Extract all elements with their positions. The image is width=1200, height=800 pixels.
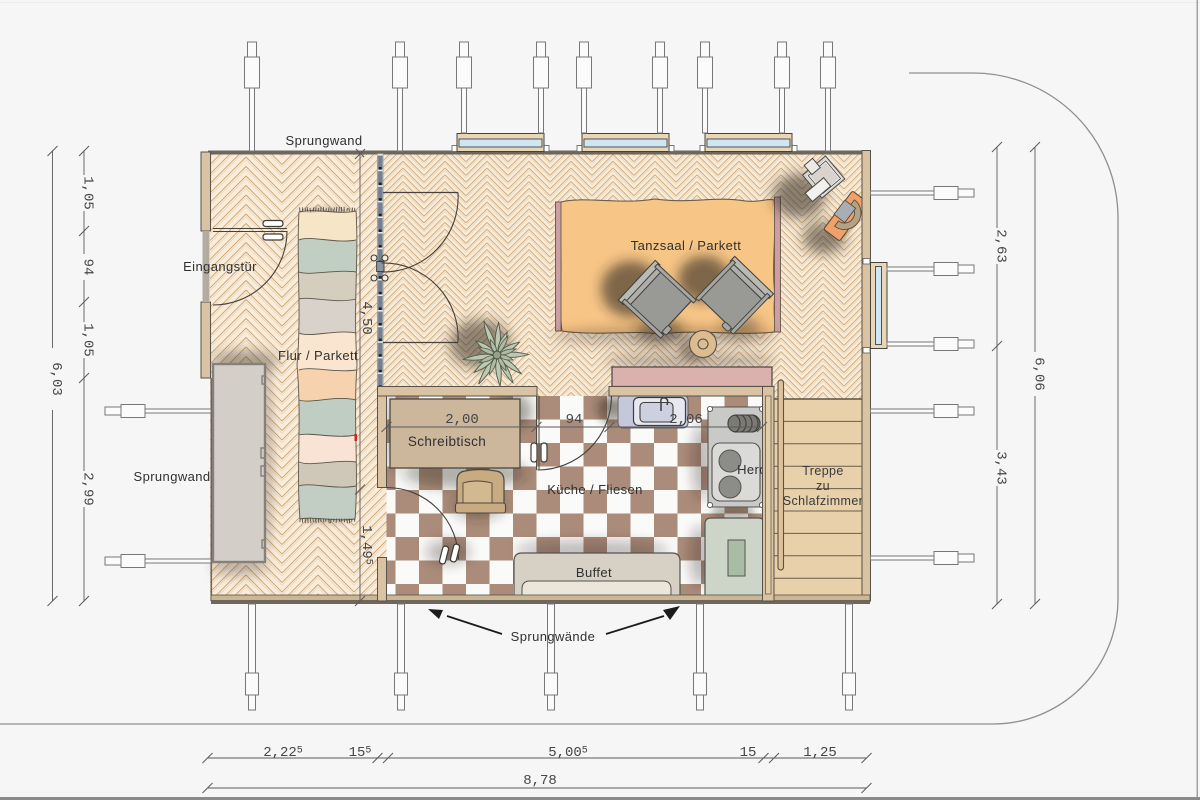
svg-text:1,05: 1,05 [80,323,96,357]
svg-text:94: 94 [80,259,96,276]
svg-text:Treppe: Treppe [802,464,844,478]
svg-text:Buffet: Buffet [576,565,612,580]
svg-text:6,06: 6,06 [1031,357,1047,391]
svg-text:Schreibtisch: Schreibtisch [408,434,486,449]
svg-text:6,03: 6,03 [48,362,64,396]
svg-text:1,25: 1,25 [803,745,837,761]
svg-text:Küche / Fliesen: Küche / Fliesen [547,482,643,497]
svg-text:Sprungwand: Sprungwand [286,133,363,148]
svg-text:Sprungwände: Sprungwände [511,629,596,644]
svg-text:8,78: 8,78 [523,773,557,789]
svg-text:zu: zu [816,479,830,493]
svg-text:2,00: 2,00 [445,412,479,428]
svg-text:Tanzsaal / Parkett: Tanzsaal / Parkett [631,238,742,253]
svg-text:Sprungwand: Sprungwand [134,469,211,484]
svg-text:2,06: 2,06 [669,412,703,428]
svg-text:2,63: 2,63 [993,229,1009,263]
svg-text:Schlafzimmer: Schlafzimmer [783,494,864,508]
svg-text:15: 15 [740,745,757,761]
svg-text:3,43: 3,43 [993,451,1009,485]
svg-text:Flur / Parkett: Flur / Parkett [278,348,358,363]
svg-text:94: 94 [566,412,583,428]
svg-text:4,50: 4,50 [358,301,374,335]
svg-text:1,05: 1,05 [80,176,96,210]
svg-text:Eingangstür: Eingangstür [183,259,257,274]
svg-text:2,99: 2,99 [80,472,96,506]
